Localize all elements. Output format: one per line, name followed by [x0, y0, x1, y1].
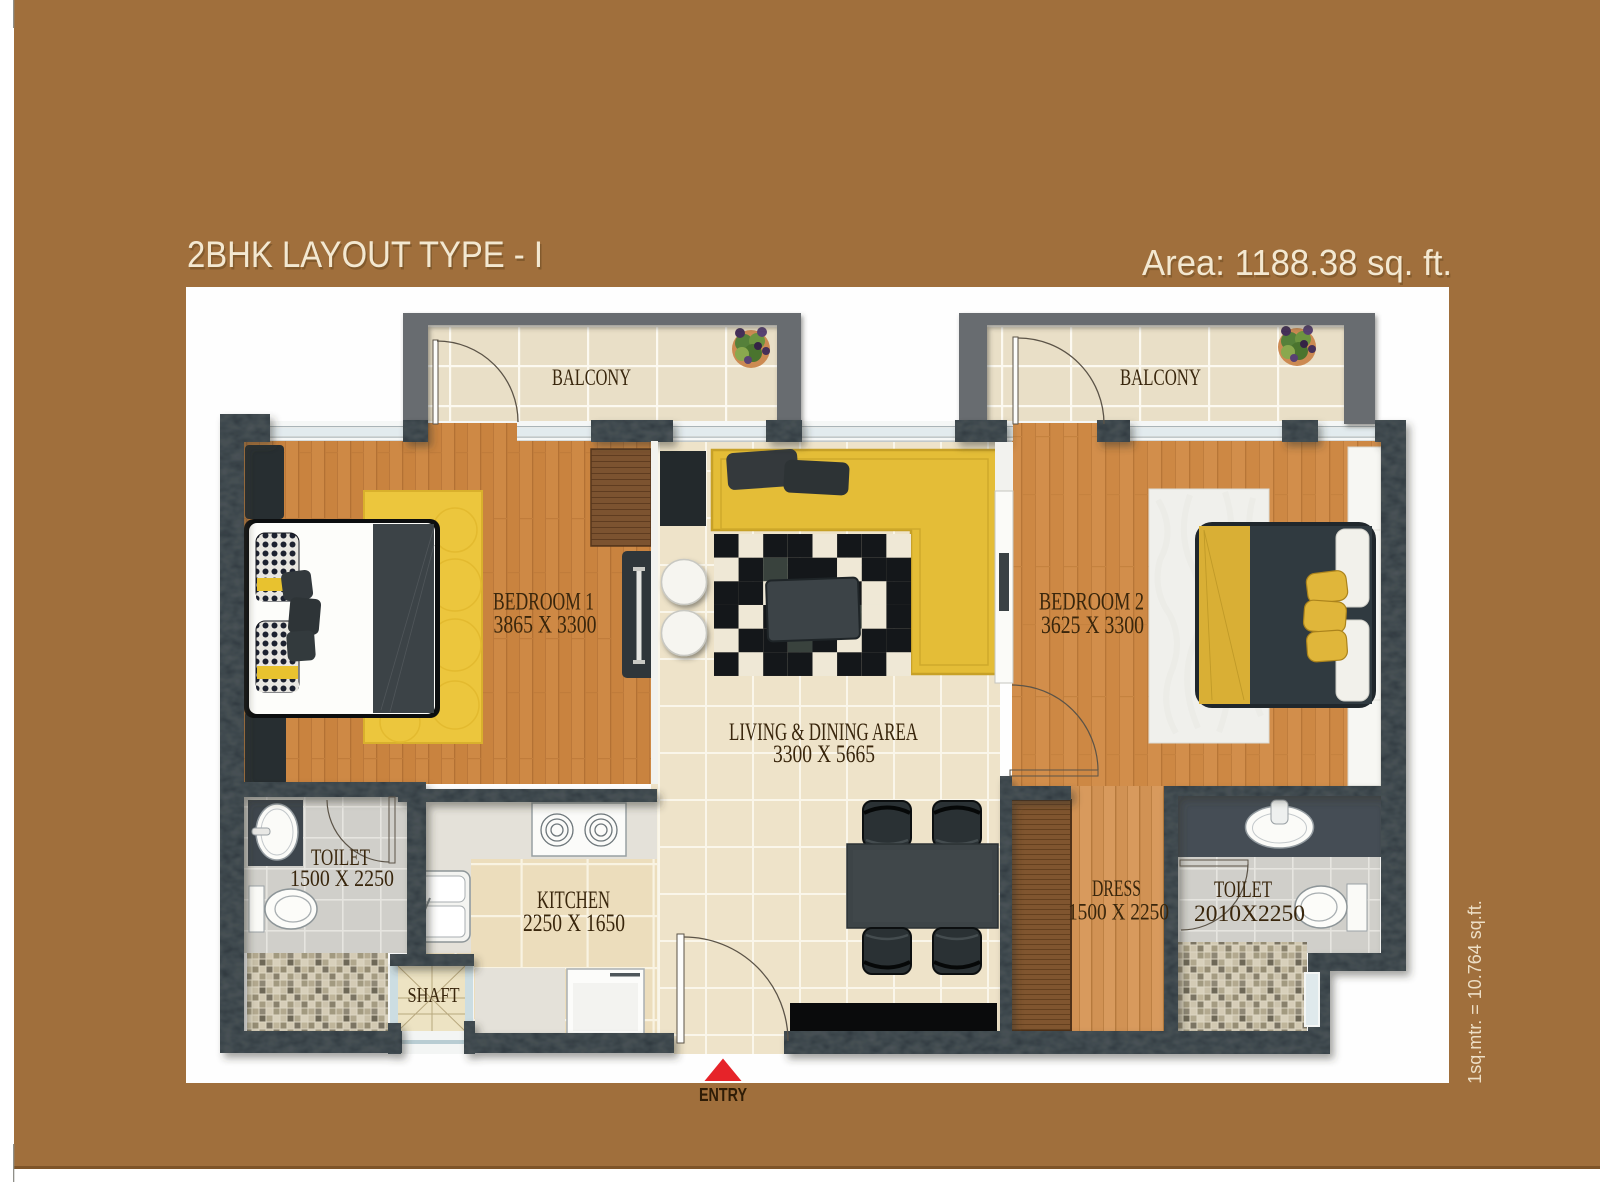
svg-text:ENTRY: ENTRY: [699, 1085, 747, 1105]
svg-text:BALCONY: BALCONY: [552, 365, 631, 390]
svg-text:Area: 1188.38 sq. ft.: Area: 1188.38 sq. ft.: [1142, 242, 1452, 283]
svg-text:3300 X 5665: 3300 X 5665: [773, 741, 875, 768]
svg-text:3865 X 3300: 3865 X 3300: [494, 612, 597, 639]
svg-text:TOILET: TOILET: [1214, 877, 1272, 902]
svg-text:3625 X 3300: 3625 X 3300: [1041, 612, 1144, 639]
svg-text:2BHK LAYOUT TYPE - I: 2BHK LAYOUT TYPE - I: [187, 234, 543, 275]
svg-text:1500 X 2250: 1500 X 2250: [290, 866, 394, 891]
svg-text:SHAFT: SHAFT: [408, 983, 460, 1007]
svg-text:1sq.mtr. = 10.764 sq.ft.: 1sq.mtr. = 10.764 sq.ft.: [1465, 900, 1485, 1084]
svg-text:2250 X 1650: 2250 X 1650: [523, 910, 625, 937]
svg-text:1500 X 2250: 1500 X 2250: [1068, 900, 1169, 925]
svg-text:DRESS: DRESS: [1092, 876, 1141, 901]
svg-text:2010X2250: 2010X2250: [1194, 901, 1305, 926]
svg-text:BALCONY: BALCONY: [1120, 365, 1201, 390]
